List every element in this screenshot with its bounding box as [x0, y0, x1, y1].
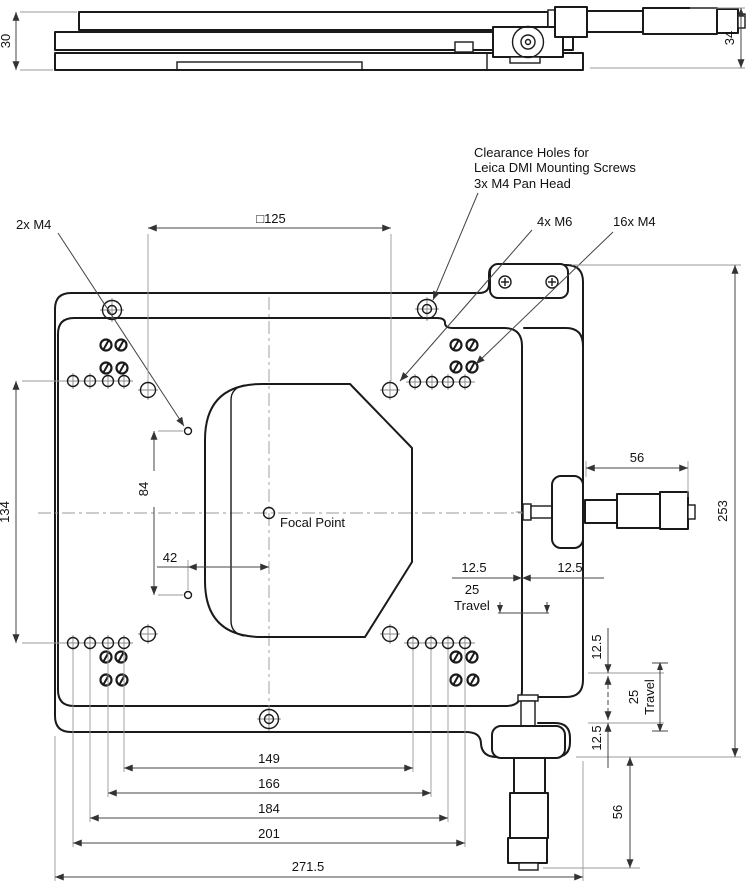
x-barrel — [585, 500, 617, 523]
dim-149-text: 149 — [258, 751, 280, 766]
dim-184: 184 — [90, 801, 448, 818]
clearance-hole — [257, 707, 281, 731]
dim-166-text: 166 — [258, 776, 280, 791]
y-bracket — [492, 726, 565, 758]
x-thimble — [617, 494, 660, 528]
dim-271-5: 271.5 — [55, 859, 583, 877]
slotted-screw — [467, 362, 478, 373]
svg-text:Leica DMI Mounting Screws: Leica DMI Mounting Screws — [474, 160, 636, 175]
x-spindle — [531, 506, 553, 518]
x-bracket — [552, 476, 583, 548]
side-top-plate — [79, 12, 548, 30]
stage-drawing-svg: 30 34 Focal Point — [0, 0, 750, 887]
dim-134: 134 — [0, 381, 66, 643]
slotted-screw — [101, 340, 112, 351]
x-spindle-stop — [523, 504, 531, 520]
dim-travel-h: Travel — [454, 598, 490, 613]
y-spindle-stop — [518, 695, 538, 701]
dim-34-text: 34 — [722, 31, 737, 45]
side-mic-knob — [717, 9, 738, 33]
slotted-screw — [116, 340, 127, 351]
slotted-screw — [451, 652, 462, 663]
plan-view: Focal Point — [0, 145, 741, 881]
side-mic-thimble — [643, 8, 717, 34]
y-tip — [519, 863, 538, 870]
slotted-screw — [117, 675, 128, 686]
slotted-screw — [451, 362, 462, 373]
technical-drawing-page: 30 34 Focal Point — [0, 0, 750, 887]
dim-271-5-text: 271.5 — [292, 859, 325, 874]
dim-30-text: 30 — [0, 34, 13, 48]
slotted-screw — [451, 340, 462, 351]
label-16x-m4: 16x M4 — [613, 214, 656, 229]
dim-201: 201 — [73, 826, 465, 843]
slotted-screw — [101, 675, 112, 686]
dim-12-5-v-bottom: 12.5 — [589, 725, 604, 750]
dim-12-5-h-right: 12.5 — [557, 560, 582, 575]
dim-166: 166 — [108, 776, 431, 793]
slotted-screw — [467, 340, 478, 351]
dim-12-5-v-top: 12.5 — [589, 634, 604, 659]
side-clamp-detail — [455, 42, 473, 52]
label-clearance-holes: Clearance Holes for Leica DMI Mounting S… — [474, 145, 636, 191]
y-spindle — [521, 701, 535, 727]
dim-253-text: 253 — [715, 500, 730, 522]
slotted-screw — [468, 675, 479, 686]
dim-134-text: 134 — [0, 501, 12, 523]
svg-text:3x M4 Pan Head: 3x M4 Pan Head — [474, 176, 571, 191]
dim-56-right-text: 56 — [630, 450, 644, 465]
dim-square-125-text: □125 — [256, 211, 286, 226]
focal-point-label: Focal Point — [280, 515, 345, 530]
dim-56-bottom-text: 56 — [610, 805, 625, 819]
y-micrometer — [492, 695, 565, 870]
dim-56-bottom: 56 — [543, 757, 640, 868]
dim-184-text: 184 — [258, 801, 280, 816]
slotted-screw — [467, 652, 478, 663]
dim-25-v: 25 — [626, 690, 641, 704]
dim-travel-vertical: 12.5 12.5 25 Travel — [588, 628, 668, 768]
top-micrometer-tab — [490, 264, 568, 298]
y-thimble — [510, 793, 548, 838]
x-tip — [688, 505, 695, 519]
dim-42-text: 42 — [163, 550, 177, 565]
y-knob — [508, 838, 547, 863]
slotted-screw — [116, 652, 127, 663]
dim-travel-v: Travel — [642, 679, 657, 715]
side-y-bracket — [493, 27, 563, 57]
dim-201-text: 201 — [258, 826, 280, 841]
side-mic-body — [555, 7, 587, 37]
dim-56-right: 56 — [586, 450, 688, 497]
side-view: 30 34 — [0, 7, 745, 70]
dim-149: 149 — [124, 751, 413, 768]
x-knob — [660, 492, 688, 529]
slotted-screw — [101, 652, 112, 663]
y-barrel — [514, 758, 545, 793]
x-micrometer — [516, 476, 695, 548]
slotted-screw — [451, 675, 462, 686]
label-2x-m4: 2x M4 — [16, 217, 51, 232]
leader-clearance-holes — [433, 193, 478, 300]
middle-plate-corner — [524, 328, 583, 346]
slotted-screw — [101, 363, 112, 374]
slotted-screw — [117, 363, 128, 374]
label-4x-m6: 4x M6 — [537, 214, 572, 229]
side-mic-barrel — [587, 11, 643, 32]
dim-84-text: 84 — [136, 482, 151, 496]
dim-travel-horizontal: 12.5 12.5 25 Travel — [452, 560, 604, 613]
svg-text:Clearance Holes for: Clearance Holes for — [474, 145, 590, 160]
dim-12-5-h-left: 12.5 — [461, 560, 486, 575]
dim-25-h: 25 — [465, 582, 479, 597]
